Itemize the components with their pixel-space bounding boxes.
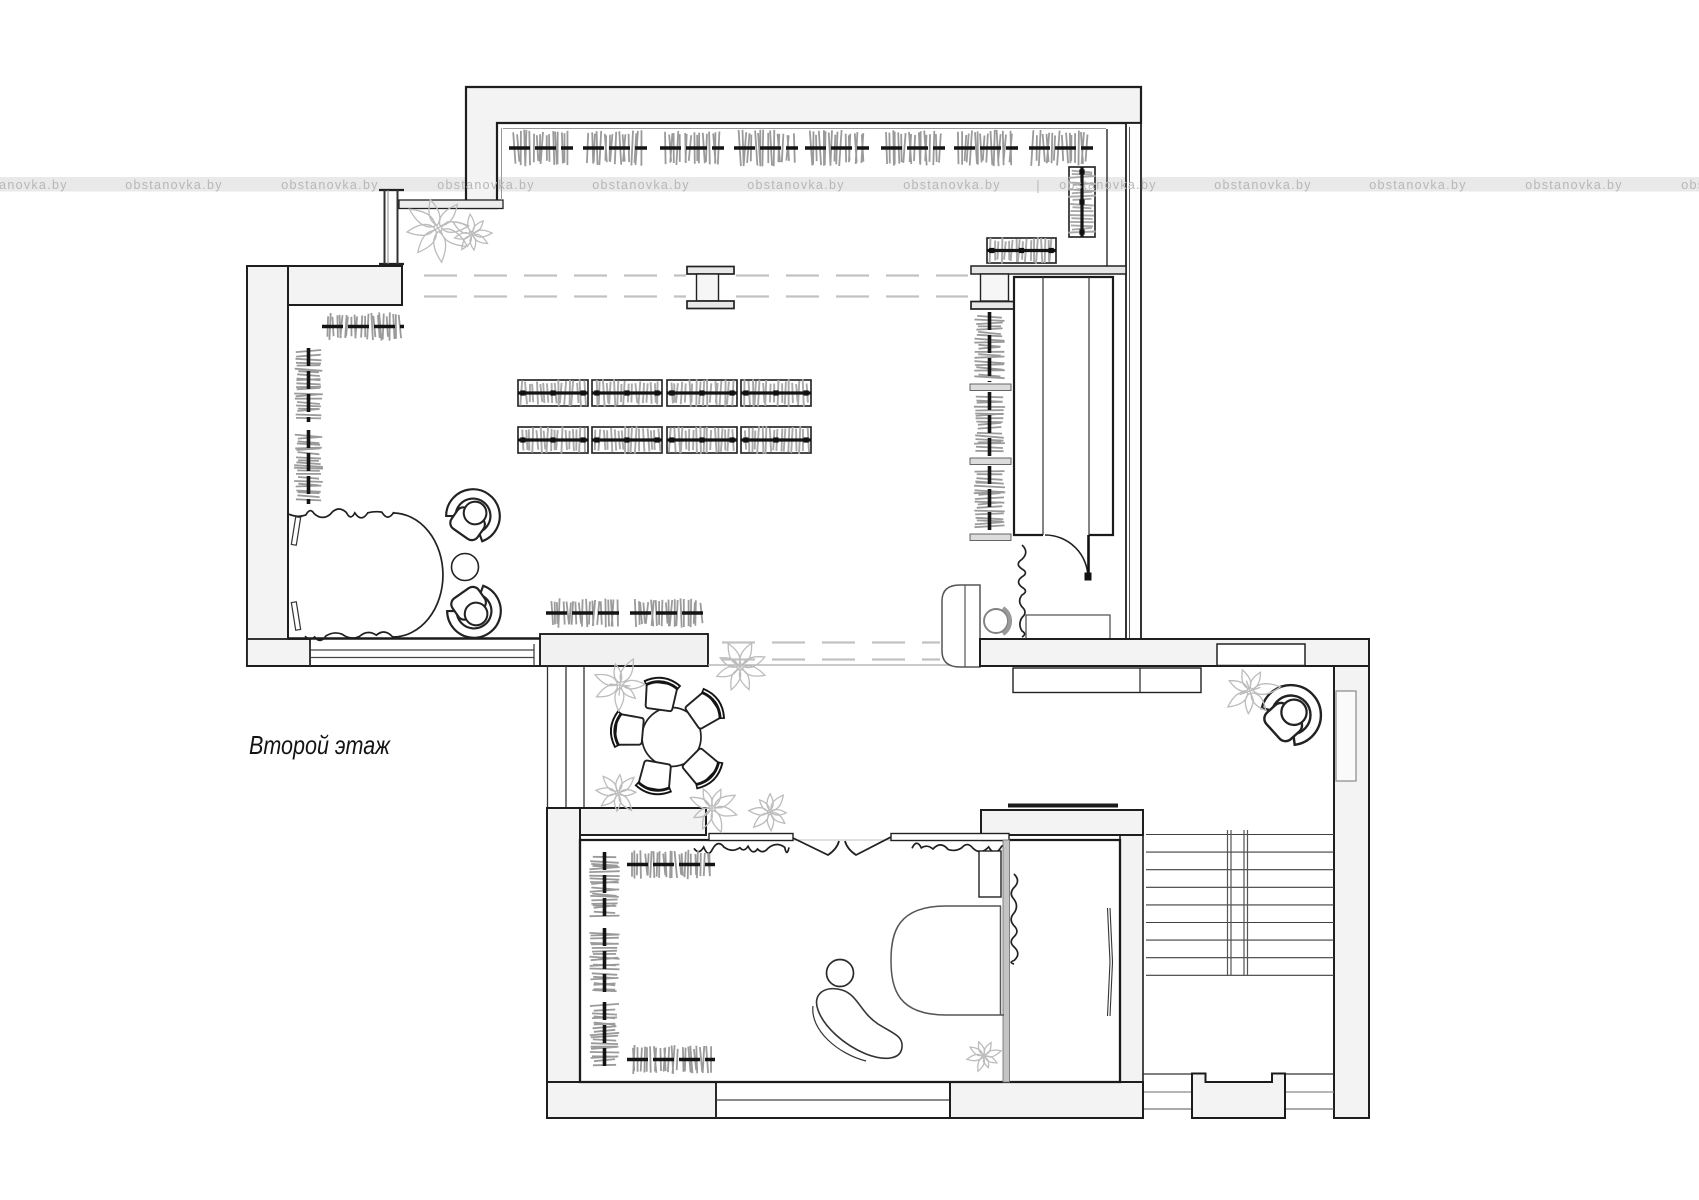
svg-text:obstanovka.by: obstanovka.by — [437, 178, 535, 192]
svg-text:obstanovka.by: obstanovka.by — [125, 178, 223, 192]
svg-text:obstanovka.by: obstanovka.by — [1369, 178, 1467, 192]
svg-text:obstanovka.by: obstanovka.by — [1681, 178, 1699, 192]
svg-text:obstanovka.by: obstanovka.by — [281, 178, 379, 192]
svg-text:obstanovka.by: obstanovka.by — [747, 178, 845, 192]
svg-text:obstanovka.by: obstanovka.by — [1525, 178, 1623, 192]
svg-text:|: | — [1036, 177, 1040, 193]
svg-text:obstanovka.by: obstanovka.by — [1059, 178, 1157, 192]
svg-text:obstanovka.by: obstanovka.by — [1214, 178, 1312, 192]
svg-text:obstanovka.by: obstanovka.by — [0, 178, 68, 192]
svg-text:Второй этаж: Второй этаж — [249, 730, 391, 760]
svg-text:obstanovka.by: obstanovka.by — [903, 178, 1001, 192]
svg-text:obstanovka.by: obstanovka.by — [592, 178, 690, 192]
